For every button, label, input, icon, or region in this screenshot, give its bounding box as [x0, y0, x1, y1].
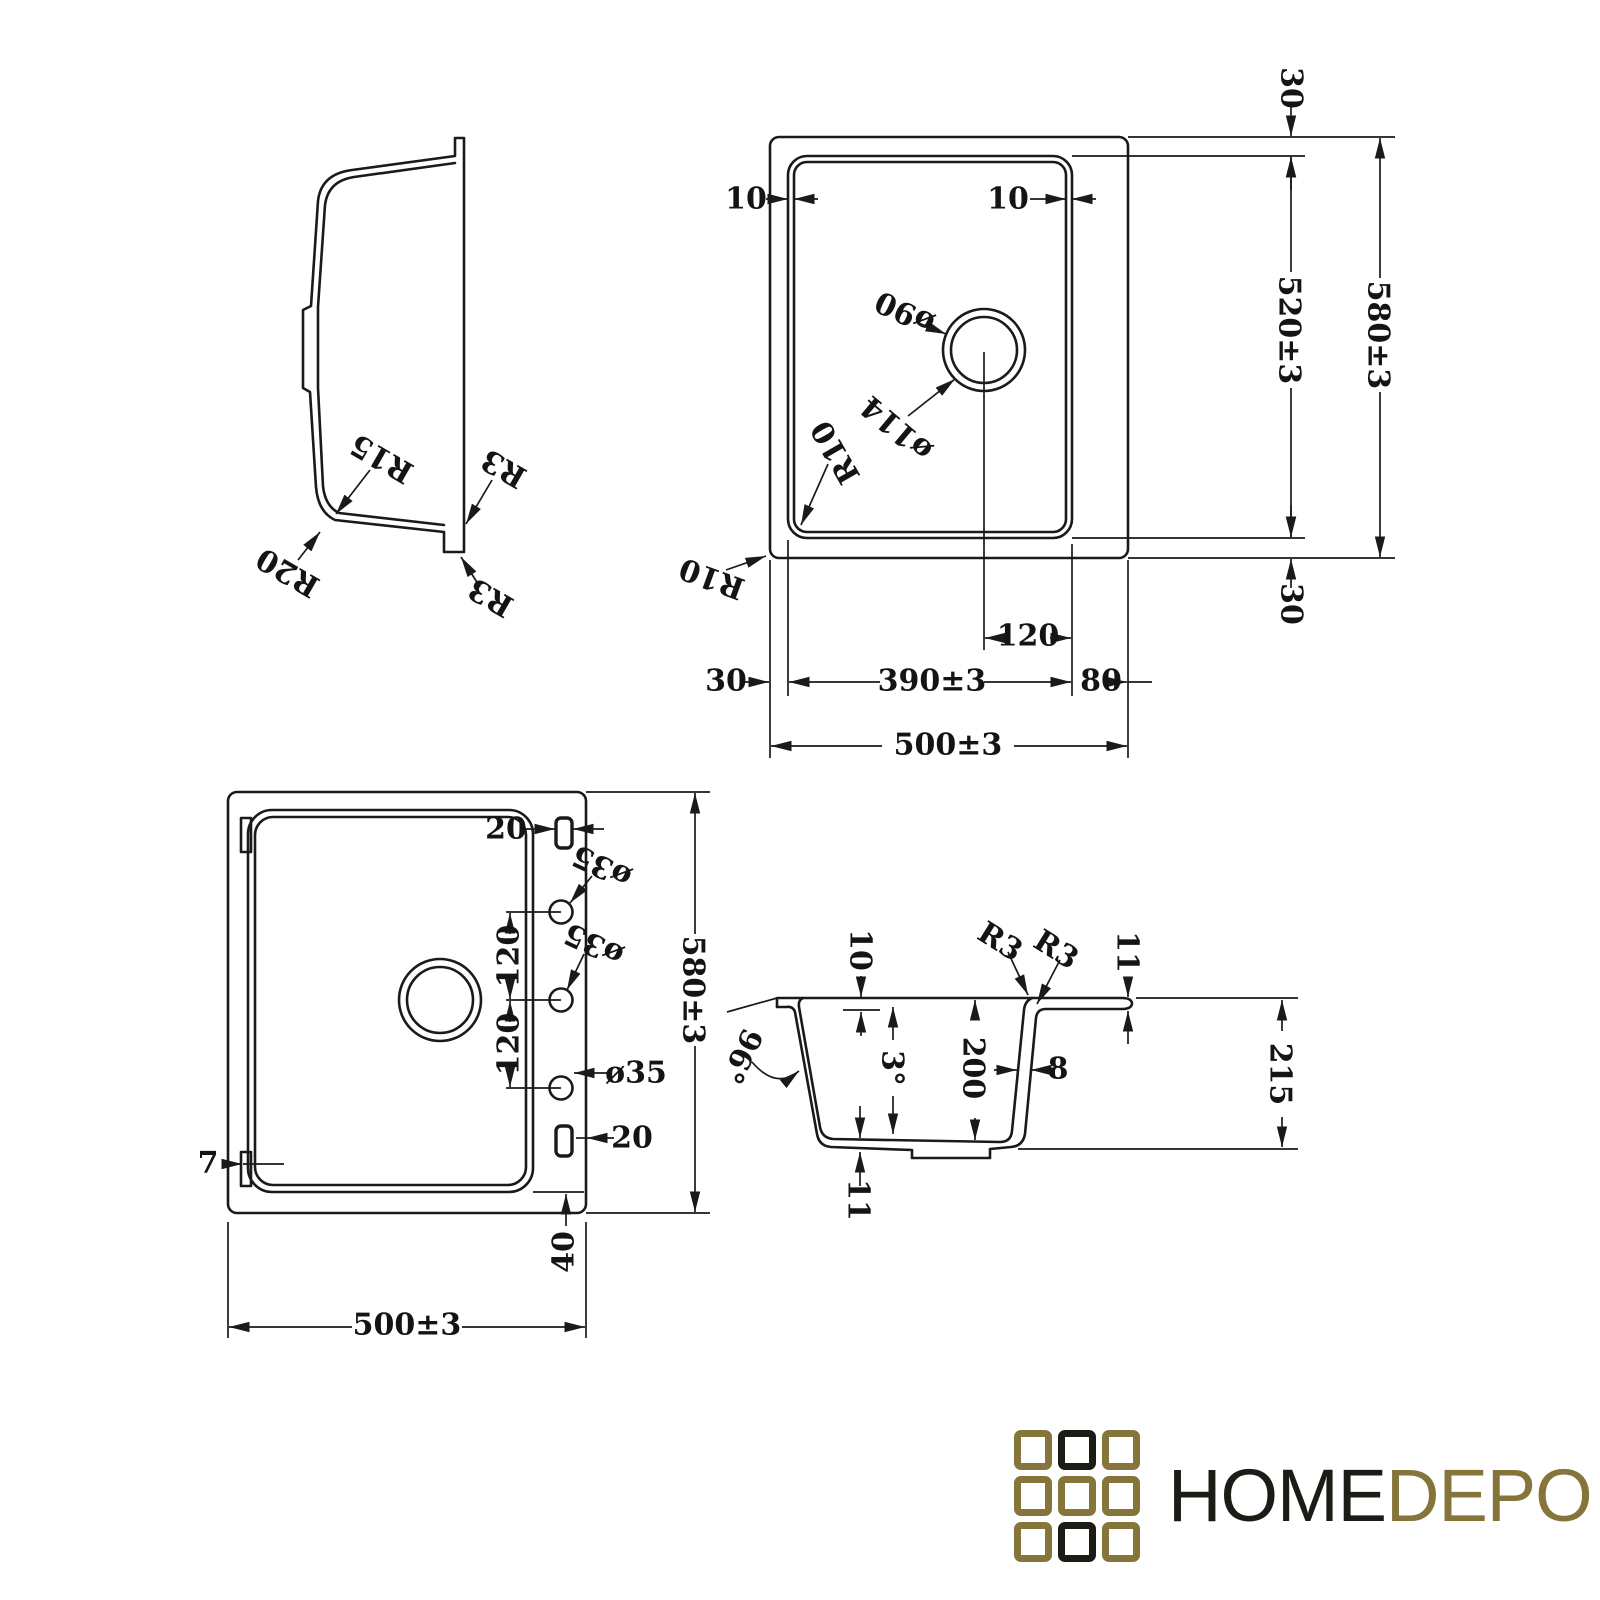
logo-grid-square	[1014, 1476, 1052, 1516]
dim-bowl-depth: 200	[956, 1000, 991, 1140]
logo-grid-square	[1014, 1522, 1052, 1562]
svg-text:7: 7	[198, 1146, 219, 1181]
dim-rim-thickness: 11	[1110, 931, 1145, 1044]
section-view: 10 96° 3° 200 8 R3 R3	[713, 915, 1298, 1221]
dim-hole-pitch-2: 120	[492, 1001, 527, 1087]
clip-slot-top	[556, 818, 572, 848]
svg-text:96°: 96°	[713, 1023, 769, 1089]
svg-text:ø35: ø35	[559, 915, 630, 973]
dim-drain-offset: 120	[985, 619, 1071, 654]
logo-grid-square	[1014, 1430, 1052, 1470]
svg-text:200: 200	[956, 1037, 991, 1100]
logo-grid-square	[1058, 1522, 1096, 1562]
dim-outer-wall-angle: 96°	[713, 998, 799, 1089]
svg-text:580±3: 580±3	[676, 936, 711, 1045]
svg-text:20: 20	[611, 1121, 653, 1156]
leader-drain-flange-dia: ø114	[854, 379, 955, 468]
svg-text:10: 10	[843, 929, 878, 971]
leader-tap-hole-3: ø35	[574, 1056, 667, 1091]
dim-overall-width-bottom-view: 500±3	[229, 1308, 585, 1343]
dim-overall-width-top: 500±3	[771, 728, 1127, 763]
dim-edge-strip: 40	[533, 1192, 584, 1273]
dim-label-r15: R15	[344, 426, 419, 490]
svg-text:30: 30	[1274, 67, 1309, 109]
dim-deck-width: 80	[1080, 664, 1152, 699]
logo-grid-icon	[1014, 1430, 1140, 1562]
bottom-view-base-rect	[248, 810, 533, 1192]
dim-label-r20: R20	[250, 540, 325, 604]
svg-text:3°: 3°	[875, 1050, 910, 1086]
logo-word-home: HOME	[1168, 1454, 1386, 1537]
dim-wall-draft-angle: 3°	[875, 1007, 910, 1134]
leader-drain-dia: ø90	[870, 283, 946, 341]
dim-rim-drop: 10	[843, 929, 881, 1036]
leader-r3-upper: R3	[466, 441, 533, 524]
svg-text:R10: R10	[804, 414, 868, 489]
leader-r3-lower: R3	[461, 557, 520, 624]
svg-text:10: 10	[987, 182, 1029, 217]
svg-text:500±3: 500±3	[353, 1308, 462, 1343]
svg-text:R3: R3	[971, 915, 1028, 969]
svg-text:80: 80	[1080, 664, 1122, 699]
dim-label-r3-lower: R3	[462, 570, 519, 623]
svg-text:40: 40	[547, 1231, 582, 1273]
sink-technical-drawing: R15 R20 R3 R3 10 10	[0, 0, 1600, 1600]
dim-edge-left: 30	[705, 664, 769, 699]
svg-text:8: 8	[1048, 1052, 1069, 1087]
svg-text:30: 30	[1274, 583, 1309, 625]
svg-text:10: 10	[725, 182, 767, 217]
drain-circle-bottom	[407, 967, 473, 1033]
top-view-outer-rect	[770, 137, 1128, 558]
svg-text:R3: R3	[1027, 923, 1084, 977]
svg-text:520±3: 520±3	[1272, 276, 1307, 385]
side-profile-view: R15 R20 R3 R3	[250, 138, 532, 624]
section-outer-contour	[777, 998, 1132, 1158]
leader-corner-radius-inner: R10	[801, 414, 868, 525]
dim-edge-bottom: 30	[1274, 505, 1309, 625]
dim-overall-length: 580±3	[1361, 138, 1396, 557]
svg-text:120: 120	[492, 925, 527, 988]
brand-logo: HOMEDEPO	[1014, 1430, 1592, 1562]
svg-text:11: 11	[841, 1179, 876, 1221]
logo-word-depo: DEPO	[1386, 1454, 1592, 1537]
dim-clip-slot-bottom: 20	[576, 1121, 653, 1156]
logo-wordmark: HOMEDEPO	[1168, 1459, 1592, 1533]
svg-text:20: 20	[485, 812, 527, 847]
svg-text:390±3: 390±3	[878, 664, 987, 699]
svg-text:580±3: 580±3	[1361, 281, 1396, 390]
svg-text:120: 120	[492, 1013, 527, 1076]
top-view-bowl-rect	[788, 156, 1072, 538]
mount-tab-bottom	[241, 1152, 251, 1186]
top-view: 10 10 30 520±3 580±3 30	[675, 67, 1396, 762]
logo-grid-square	[1058, 1476, 1096, 1516]
leader-tap-hole-1: ø35	[567, 837, 638, 903]
leader-r20: R20	[250, 532, 325, 604]
leader-radius-rim-1: R3	[971, 915, 1028, 995]
leader-tap-hole-2: ø35	[559, 915, 630, 990]
leader-r15: R15	[336, 426, 420, 514]
dim-label-r3-upper: R3	[475, 441, 532, 494]
svg-text:R10: R10	[675, 550, 750, 606]
dim-rim-lip-left: 10	[725, 182, 818, 217]
dim-overall-length-bottom-view: 580±3	[676, 793, 711, 1212]
clip-slot-bottom	[556, 1126, 572, 1156]
svg-text:11: 11	[1110, 931, 1145, 973]
dim-base-thickness: 11	[841, 1106, 876, 1221]
svg-text:120: 120	[997, 619, 1060, 654]
logo-grid-square	[1102, 1430, 1140, 1470]
svg-text:30: 30	[705, 664, 747, 699]
leader-corner-radius-outer: R10	[675, 550, 766, 606]
dim-rim-lip-right: 10	[987, 182, 1096, 217]
leader-radius-rim-2: R3	[1027, 923, 1084, 1004]
drain-flange-circle-bottom	[399, 959, 481, 1041]
dim-bowl-width: 390±3	[789, 664, 1071, 699]
dim-bowl-length: 520±3	[1272, 157, 1307, 537]
svg-text:ø35: ø35	[567, 837, 638, 895]
dim-hole-pitch-1: 120	[492, 913, 527, 999]
svg-text:215: 215	[1263, 1043, 1298, 1106]
svg-text:ø35: ø35	[605, 1056, 667, 1091]
bottom-view: 20 ø35 ø35 ø35 120 120	[198, 792, 711, 1343]
bottom-view-base-rect-inner	[255, 817, 526, 1185]
logo-grid-square	[1102, 1476, 1140, 1516]
svg-text:ø90: ø90	[870, 283, 941, 341]
logo-grid-square	[1102, 1522, 1140, 1562]
logo-grid-square	[1058, 1430, 1096, 1470]
svg-text:500±3: 500±3	[894, 728, 1003, 763]
